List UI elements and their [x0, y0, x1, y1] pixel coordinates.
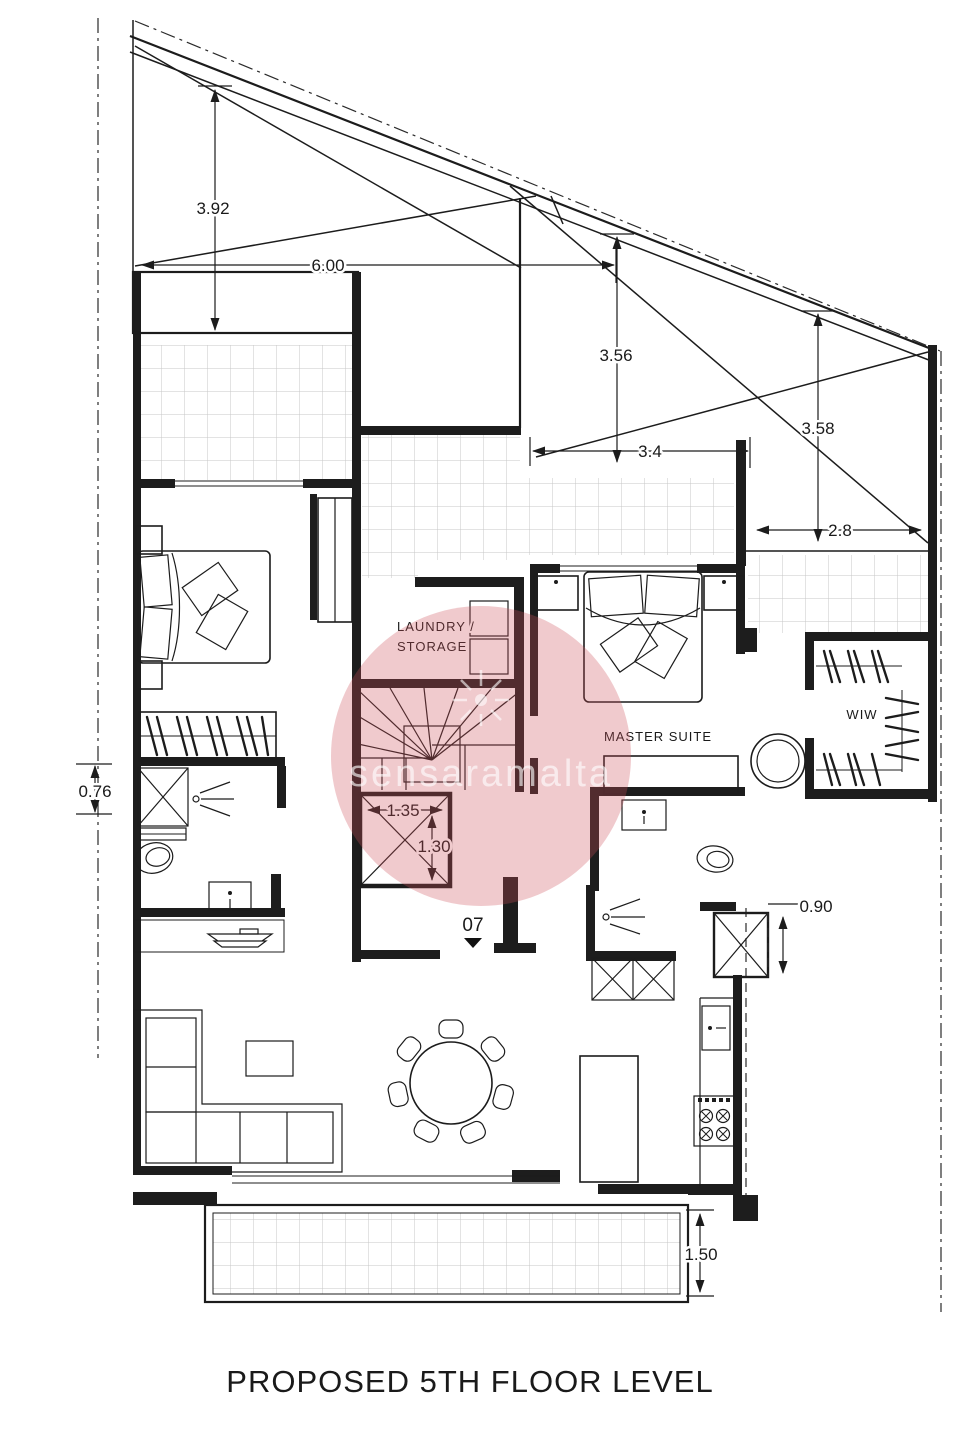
kitchen — [580, 998, 734, 1186]
brace-right-up — [536, 352, 928, 457]
toilet — [695, 844, 734, 875]
roof-edge-upper — [130, 36, 934, 350]
dim-roof-height-mid: 3.56 — [599, 234, 634, 462]
master-bathroom — [592, 800, 768, 1000]
dim-label-3-4: 3.4 — [638, 442, 662, 461]
dim-label-6-00: 6.00 — [311, 256, 344, 275]
terrace-upper-middle — [362, 435, 734, 578]
terrace-upper-right — [748, 555, 928, 633]
floor-plan-drawing: 3.92 6.00 3.56 3.4 3.58 2.8 — [0, 0, 975, 1439]
dim-label-0-90: 0.90 — [799, 897, 832, 916]
terrace-bottom — [213, 1213, 680, 1294]
page-title: PROPOSED 5TH FLOOR LEVEL — [226, 1364, 713, 1399]
dim-duct-left: 0.76 — [76, 764, 112, 814]
dim-terrace-right-width: 2.8 — [757, 521, 921, 540]
island-unit — [580, 1056, 638, 1182]
roof-strip-block — [133, 272, 358, 333]
vanity-sink — [209, 882, 251, 910]
bedroom-left — [136, 498, 352, 761]
dim-roof-height-left: 3.92 — [196, 86, 232, 330]
watermark: sensaramalta — [331, 606, 631, 906]
shower-head-icon — [603, 899, 645, 934]
floor-plan-sheet: 3.92 6.00 3.56 3.4 3.58 2.8 — [0, 0, 975, 1439]
kitchen-sink — [702, 1006, 730, 1050]
corner-sofa — [134, 1010, 342, 1172]
dim-label-3-56: 3.56 — [599, 346, 632, 365]
dining-set — [387, 1020, 515, 1145]
boundary-roof-diagonal — [135, 21, 940, 351]
duct-right — [714, 913, 768, 977]
closet-boxes — [592, 958, 674, 1000]
wardrobe — [139, 712, 276, 761]
double-bed — [138, 551, 270, 663]
dim-label-1-50: 1.50 — [684, 1245, 717, 1264]
roof-edge-lower — [130, 52, 934, 362]
dim-label-3-92: 3.92 — [196, 199, 229, 218]
dim-label-3-58: 3.58 — [801, 419, 834, 438]
dim-label-0-76: 0.76 — [78, 782, 111, 801]
wiw-label: WIW — [846, 707, 877, 722]
dim-label-2-8: 2.8 — [828, 521, 852, 540]
dim-terrace-bottom-depth: 1.50 — [684, 1210, 717, 1296]
watermark-text: sensaramalta — [349, 753, 613, 795]
roof-tick — [551, 196, 563, 224]
dim-terrace-mid-width: 3.4 — [530, 437, 750, 468]
bathroom-left — [132, 768, 284, 952]
brace-left-down — [135, 46, 521, 268]
round-tub — [751, 734, 805, 788]
dim-roof-span: 6.00 — [142, 248, 616, 283]
unit-number-label: 07 — [462, 915, 483, 936]
coffee-table — [246, 1041, 293, 1076]
dim-roof-height-right: 3.58 — [801, 311, 835, 541]
entrance-arrow-icon — [464, 938, 482, 948]
shower-head-icon — [193, 782, 234, 816]
shelf-towel — [134, 920, 284, 952]
vanity-sink — [622, 800, 666, 830]
living-dining — [134, 1010, 515, 1172]
terrace-upper-left — [141, 345, 352, 480]
dim-duct-right: 0.90 — [768, 897, 833, 973]
